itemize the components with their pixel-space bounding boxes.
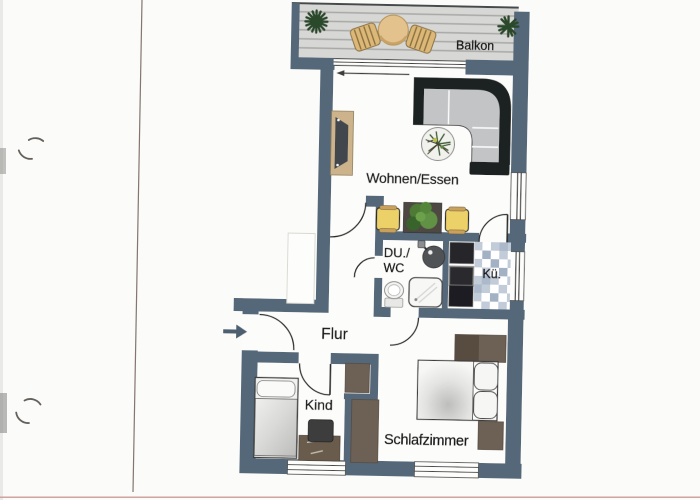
svg-text:Balkon: Balkon — [456, 38, 495, 53]
svg-text:Kind: Kind — [305, 396, 333, 413]
svg-text:Schlafzimmer: Schlafzimmer — [384, 432, 469, 450]
svg-text:Kü.: Kü. — [482, 267, 501, 281]
svg-text:DU./: DU./ — [384, 245, 411, 261]
svg-text:Wohnen/Essen: Wohnen/Essen — [366, 170, 459, 188]
svg-text:WC: WC — [383, 261, 404, 275]
svg-text:Flur: Flur — [321, 326, 348, 344]
